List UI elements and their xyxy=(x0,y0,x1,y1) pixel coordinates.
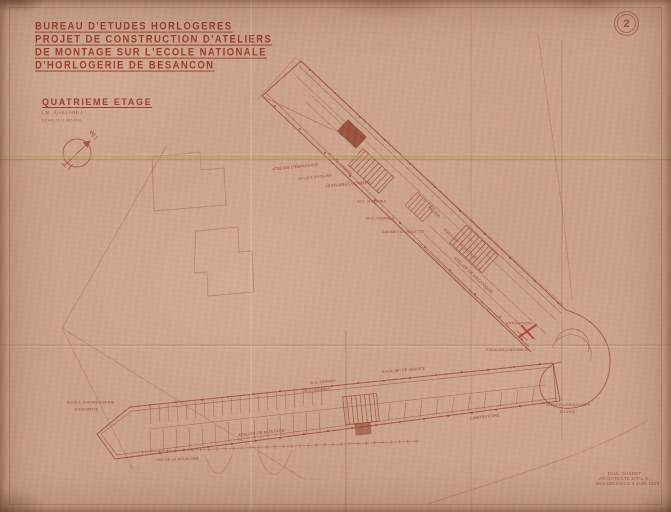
compass-icon xyxy=(62,133,98,170)
room-label: W.C. FEMMES xyxy=(366,216,395,221)
room-label: ATELIER A PROLONGER xyxy=(546,403,590,407)
blueprint-sheet: BUREAU D'ETUDES HORLOGERES PROJET DE CON… xyxy=(0,0,671,512)
room-label: W.C. HOMMES xyxy=(357,199,386,204)
room-label: CABINET DE TOILETTE xyxy=(382,230,424,234)
plan-drawing xyxy=(0,0,671,512)
existing-buildings-outline xyxy=(152,152,254,296)
room-label: ECOLE D'HORLOGERIE xyxy=(67,400,115,405)
room-label: EXPOSITION xyxy=(506,321,532,326)
bottom-wing-stairs xyxy=(343,393,381,436)
floor-scale: ECHELLE 0.005 P.M. xyxy=(42,118,95,122)
title-line-4: D'HORLOGERIE DE BESANCON xyxy=(35,58,272,73)
floor-subtitle: ( M. JUAILLARD ) xyxy=(42,110,103,115)
room-label: EXISTANTE xyxy=(75,407,98,412)
signature-date: BESANCON LE 4 JUIN 1929 xyxy=(596,481,653,486)
floor-title: QUATRIEME ETAGE xyxy=(42,97,152,107)
junction-hall xyxy=(540,310,610,408)
page-number: 2 xyxy=(617,14,636,33)
page-number-stamp: 2 xyxy=(614,11,639,36)
title-block: BUREAU D'ETUDES HORLOGERES PROJET DE CON… xyxy=(35,20,272,72)
room-label: ESCALIER D'HONNEUR xyxy=(486,348,529,352)
upper-wing-stairs xyxy=(337,119,498,272)
floor-title-block: QUATRIEME ETAGE ( M. JUAILLARD ) ECHELLE… xyxy=(42,97,152,127)
room-label: EN 1950 xyxy=(560,410,575,414)
signature-block: PAUL GUADET ARCHITECTE D.P.L.G. BESANCON… xyxy=(596,471,653,486)
